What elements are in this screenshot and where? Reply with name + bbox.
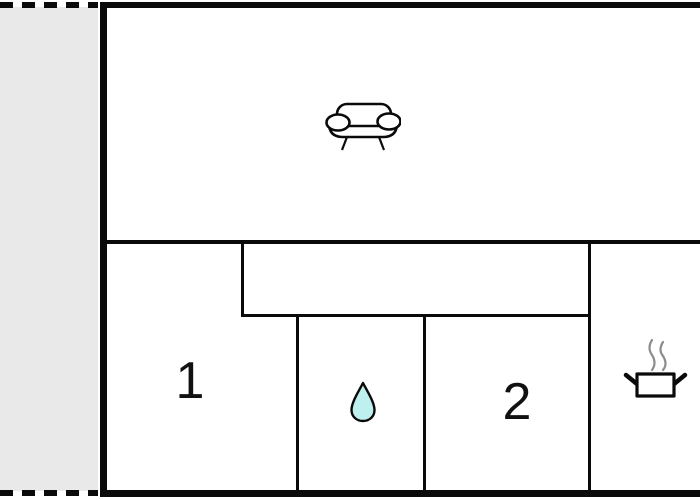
wall-outer-bottom bbox=[100, 490, 700, 497]
sofa-icon bbox=[321, 99, 401, 152]
cooking-pot-icon bbox=[620, 337, 690, 399]
wall-outer-left bbox=[100, 2, 107, 497]
water-drop-icon bbox=[349, 381, 377, 423]
terrace-dashed-border-top bbox=[0, 2, 98, 8]
bedroom-2-label: 2 bbox=[487, 373, 547, 431]
floor-plan: 1 2 bbox=[0, 0, 700, 500]
terrace-dashed-border-bottom bbox=[0, 490, 98, 496]
terrace-area bbox=[0, 7, 98, 491]
bedroom-1-label: 1 bbox=[160, 352, 220, 410]
room-living bbox=[107, 8, 700, 240]
